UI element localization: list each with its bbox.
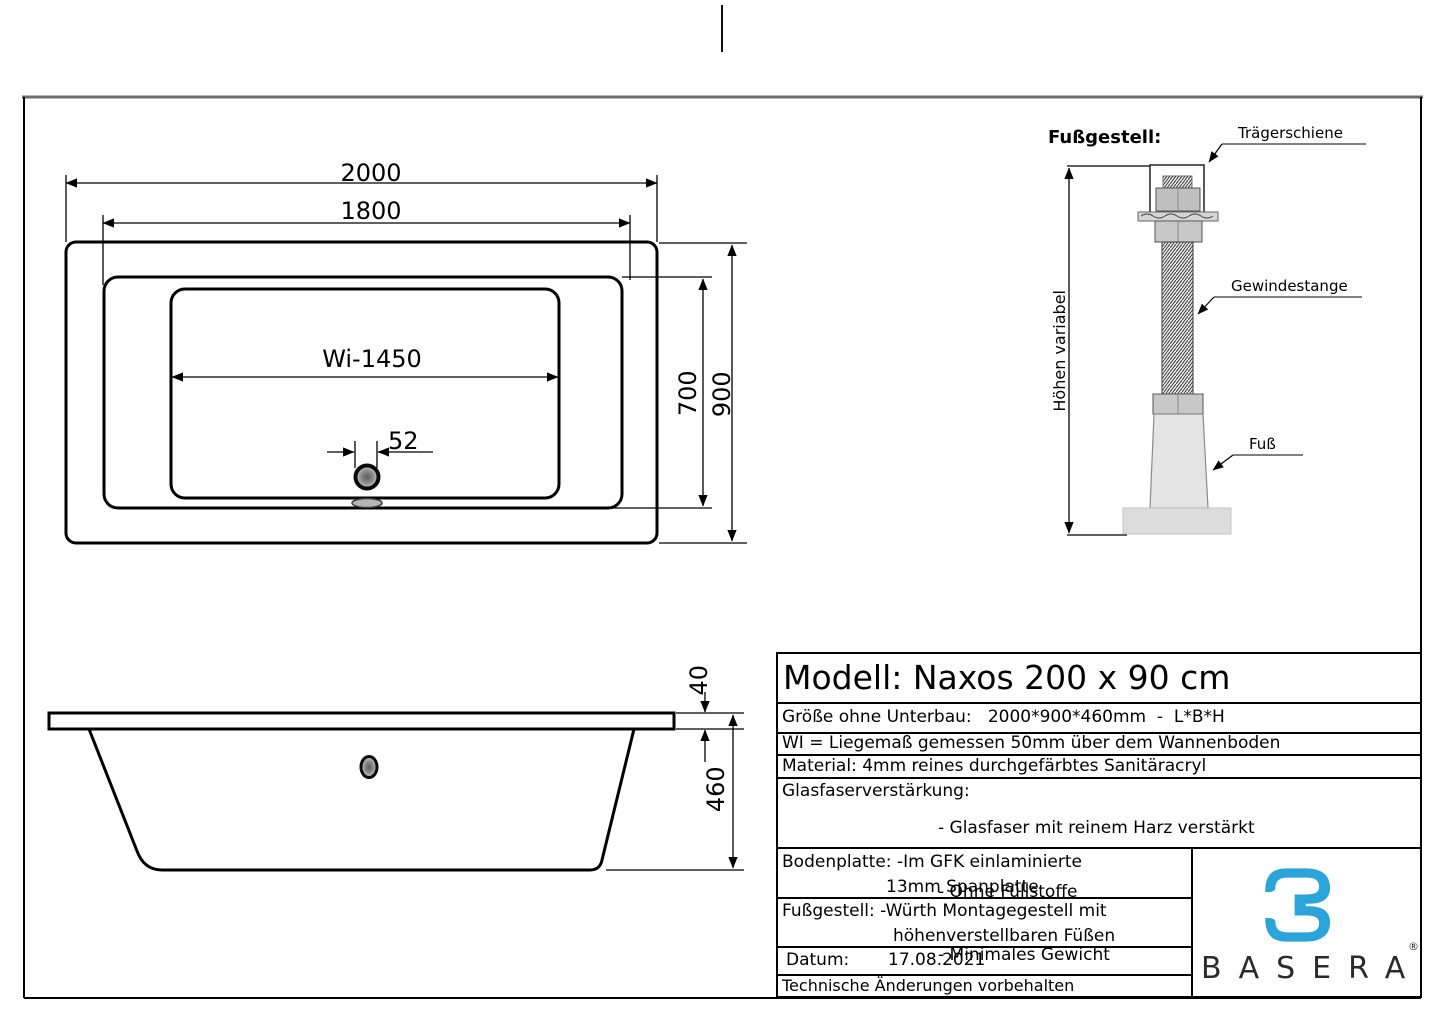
footframe-line1: Fußgestell: -Würth Montagegestell mit <box>782 902 1107 921</box>
leader-foot <box>1213 455 1233 470</box>
drain-hole <box>356 466 379 489</box>
baseplate-line1: Bodenplatte: -Im GFK einlaminierte <box>782 853 1082 872</box>
baseplate-line2: 13mm Spanplatte <box>886 878 1039 897</box>
label-rail: Trägerschiene <box>1238 125 1343 142</box>
brand-wordmark: BASERA <box>1201 952 1422 985</box>
dim-label-460: 460 <box>703 759 729 819</box>
registered-mark: ® <box>1408 941 1419 953</box>
label-threaded-rod: Gewindestange <box>1231 278 1348 295</box>
leader-rod <box>1198 297 1214 314</box>
dim-label-700: 700 <box>675 353 701 433</box>
leader-rail <box>1209 144 1222 162</box>
revision-note: Technische Änderungen vorbehalten <box>782 977 1074 995</box>
material-row: Material: 4mm reines durchgefärbtes Sani… <box>782 757 1206 776</box>
tub-body-profile <box>89 729 634 870</box>
label-height-variable: Höhen variabel <box>1051 286 1069 416</box>
tub-rim-profile <box>49 713 674 729</box>
dim-label-wi1450: Wi-1450 <box>292 346 452 372</box>
dim-label-52: 52 <box>388 428 419 454</box>
foot-assembly-title: Fußgestell: <box>1048 128 1161 148</box>
model-title: Modell: Naxos 200 x 90 cm <box>783 660 1230 696</box>
wi-row: WI = Liegemaß gemessen 50mm über dem Wan… <box>782 734 1280 753</box>
date-value: 17.08.2021 <box>888 951 985 970</box>
dim-label-1800: 1800 <box>321 198 421 224</box>
foot-assembly <box>1067 144 1366 535</box>
overflow-top-view <box>352 499 382 508</box>
rod-tip <box>1163 176 1192 188</box>
overflow-side-view <box>361 757 377 778</box>
dim-label-2000: 2000 <box>321 160 421 186</box>
dim-label-900: 900 <box>709 354 735 434</box>
foot-body <box>1150 414 1208 508</box>
basera-logo-icon <box>1261 861 1341 949</box>
dim-label-40: 40 <box>686 650 712 710</box>
fiberglass-item: - Glasfaser mit reinem Harz verstärkt <box>938 819 1255 845</box>
footframe-line2: höhenverstellbaren Füßen <box>893 927 1115 946</box>
technical-drawing-sheet: { "top_view": { "dim_outer_length": "200… <box>0 0 1445 1022</box>
side-view <box>49 713 674 870</box>
top-view <box>66 242 657 543</box>
label-foot: Fuß <box>1249 436 1276 453</box>
size-row: Größe ohne Unterbau: 2000*900*460mm - L*… <box>782 708 1225 727</box>
threaded-rod <box>1162 242 1193 394</box>
foot-base-plate <box>1123 508 1231 534</box>
date-label: Datum: <box>786 951 849 970</box>
